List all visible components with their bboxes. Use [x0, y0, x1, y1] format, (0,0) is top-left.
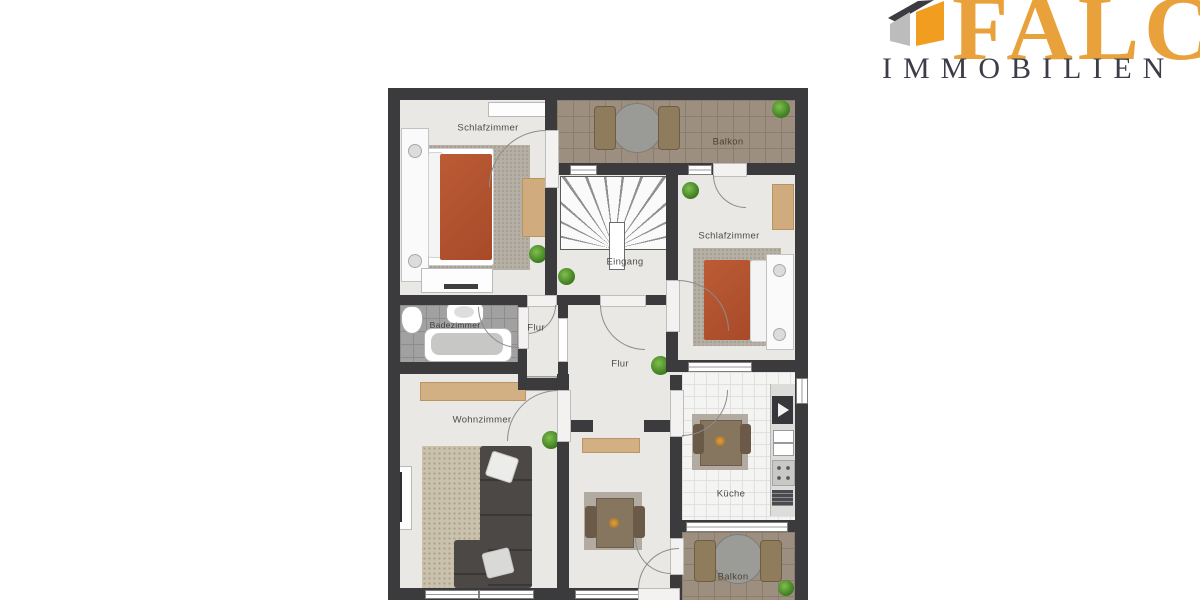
window [796, 378, 808, 404]
room-label-badezimmer: Badezimmer [430, 320, 481, 330]
wall-inner [400, 362, 527, 374]
window [575, 590, 640, 599]
room-label-balkon-top: Balkon [713, 137, 744, 148]
room-label-wohnzimmer: Wohnzimmer [453, 415, 512, 426]
window [686, 522, 788, 532]
door-opening [557, 390, 571, 442]
window [479, 590, 534, 599]
wall-inner [666, 330, 678, 372]
fruit-bowl [715, 436, 725, 446]
door-opening [638, 588, 680, 600]
room-label-flur-large: Flur [611, 359, 629, 370]
wall-inner [545, 186, 557, 305]
nightstand-lamp [408, 254, 422, 268]
room-label-kueche: Küche [717, 489, 745, 500]
oven-door [778, 403, 789, 417]
falc-house-icon [886, 0, 952, 48]
room-label-schlafzimmer-left: Schlafzimmer [457, 123, 518, 134]
radiator [772, 490, 793, 506]
sink-basin [454, 306, 474, 318]
wall-inner [666, 175, 678, 280]
wall-inner [670, 435, 682, 538]
wall-left [388, 88, 400, 600]
wall-inner [400, 295, 527, 305]
dresser [421, 268, 493, 293]
window [425, 590, 479, 599]
brand-subtitle: IMMOBILIEN [882, 54, 1175, 84]
pocket-door [558, 318, 568, 362]
toilet [401, 306, 423, 334]
floorplan: Schlafzimmer Balkon Eingang Schlafzimmer… [388, 88, 808, 600]
stove [772, 460, 795, 486]
wall-inner [555, 295, 600, 305]
wall-top [388, 88, 808, 100]
room-label-eingang: Eingang [607, 257, 644, 268]
falc-logo: FALC IMMOBILIEN [880, 0, 1200, 95]
wall-inner [569, 420, 593, 432]
room-label-balkon-bottom: Balkon [718, 572, 749, 583]
balcony-chair [694, 540, 716, 582]
sideboard [582, 438, 640, 453]
wall-inner [557, 374, 569, 390]
window [570, 165, 597, 175]
wall-inner [557, 440, 569, 600]
bed-left-blanket [440, 154, 492, 260]
room-label-flur-small: Flur [527, 323, 545, 334]
dresser-handle [444, 284, 478, 289]
nightstand-lamp [408, 144, 422, 158]
wall-inner [670, 375, 682, 390]
door-opening [545, 130, 559, 188]
dining-chair [633, 506, 645, 538]
balcony-table [612, 103, 662, 153]
kitchen-sink [773, 443, 794, 456]
nightstand-lamp [773, 328, 786, 341]
plant-icon [778, 580, 794, 596]
window [688, 165, 712, 175]
kitchen-chair [740, 424, 751, 454]
bench [772, 184, 794, 230]
page: FALC IMMOBILIEN [0, 0, 1200, 600]
kitchen-sink [773, 430, 794, 443]
sideboard [420, 382, 526, 401]
dining-chair [585, 506, 597, 538]
nightstand-lamp [773, 264, 786, 277]
window [688, 362, 752, 372]
plant-icon [682, 182, 699, 199]
plant-icon [558, 268, 575, 285]
room-label-schlafzimmer-right: Schlafzimmer [698, 231, 759, 242]
fruit-bowl [609, 518, 619, 528]
balcony-chair [658, 106, 680, 150]
plant-icon [772, 100, 790, 118]
balcony-chair [760, 540, 782, 582]
balcony-chair [594, 106, 616, 150]
wardrobe [488, 102, 546, 117]
wall-inner [545, 100, 557, 130]
